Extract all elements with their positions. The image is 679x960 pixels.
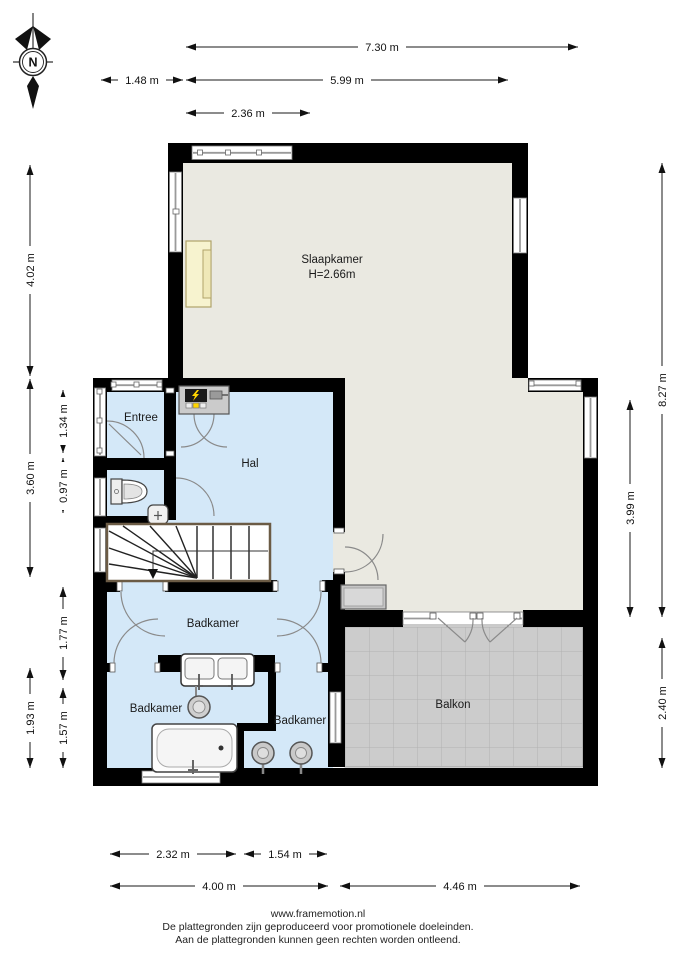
dim-right-total-height: 8.27 m bbox=[655, 163, 669, 617]
dim-bottom-bath-right-width: 1.54 m bbox=[244, 847, 327, 861]
badkamer-links-label: Badkamer bbox=[130, 703, 183, 715]
hand-basin bbox=[148, 505, 168, 524]
dim-left-lower-height: 1.93 m bbox=[23, 668, 37, 768]
floorplan-canvas: N bbox=[0, 0, 679, 960]
dim-label: 3.60 m bbox=[25, 461, 37, 495]
balcony-left-window bbox=[330, 692, 341, 743]
dim-label: 2.40 m bbox=[657, 686, 669, 720]
dim-left-toilet-height: 0.97 m bbox=[56, 458, 70, 513]
entree-label: Entree bbox=[124, 412, 158, 424]
dim-label: 1.34 m bbox=[58, 404, 70, 438]
dim-label: 4.46 m bbox=[443, 881, 477, 893]
dim-label: 5.99 m bbox=[330, 75, 364, 87]
floorplan-page: N bbox=[0, 0, 679, 960]
bathtub-bottom-window bbox=[142, 771, 220, 783]
bedroom-cabinet bbox=[341, 585, 386, 609]
bedroom-right-window bbox=[514, 198, 527, 253]
bedroom-left-window bbox=[170, 172, 182, 252]
dim-label: 7.30 m bbox=[365, 42, 399, 54]
dim-top-window-width: 2.36 m bbox=[186, 106, 310, 120]
footer-website-link[interactable]: www.framemotion.nl bbox=[270, 908, 366, 920]
compass-north-label: N bbox=[28, 56, 37, 70]
meter-cupboard bbox=[179, 386, 229, 414]
dim-left-mid-height: 3.60 m bbox=[23, 379, 37, 577]
balcony-door-window-strip bbox=[403, 612, 523, 625]
dim-label: 4.00 m bbox=[202, 881, 236, 893]
dim-label: 4.02 m bbox=[25, 253, 37, 287]
slaapkamer-label: Slaapkamer bbox=[301, 254, 363, 266]
dim-right-bedroom-height: 3.99 m bbox=[623, 400, 637, 617]
footer: www.framemotion.nl De plattegronden zijn… bbox=[162, 908, 473, 946]
dim-label: 1.48 m bbox=[125, 75, 159, 87]
badkamer-rechts-label: Badkamer bbox=[274, 715, 327, 727]
dim-label: 3.99 m bbox=[625, 491, 637, 525]
balcony-tile-grid bbox=[345, 627, 583, 767]
north-compass-icon: N bbox=[13, 13, 53, 109]
dim-bottom-wing-width: 4.00 m bbox=[110, 879, 328, 893]
bedroom-step-window bbox=[529, 380, 581, 391]
dim-left-bathroom-height: 1.77 m bbox=[56, 587, 70, 680]
dim-bottom-bath-left-width: 2.32 m bbox=[110, 847, 236, 861]
entree-left-window bbox=[95, 388, 106, 456]
dim-label: 0.97 m bbox=[58, 469, 70, 503]
toilet bbox=[111, 479, 147, 504]
slaapkamer-height-label: H=2.66m bbox=[309, 269, 356, 281]
badkamer-main-label: Badkamer bbox=[187, 618, 240, 630]
dim-label: 1.54 m bbox=[268, 849, 302, 861]
toilet-left-window bbox=[95, 478, 106, 516]
footer-disclaimer-line2: Aan de plattegronden kunnen geen rechten… bbox=[175, 934, 460, 946]
dim-label: 8.27 m bbox=[657, 373, 669, 407]
dim-left-bath-lower-height: 1.57 m bbox=[56, 688, 70, 768]
staircase bbox=[107, 524, 270, 581]
dim-label: 1.93 m bbox=[25, 701, 37, 735]
dim-right-balcony-height: 2.40 m bbox=[655, 638, 669, 768]
dim-label: 2.36 m bbox=[231, 108, 265, 120]
dim-label: 1.57 m bbox=[58, 711, 70, 745]
hal-label: Hal bbox=[241, 458, 258, 470]
double-sink-vanity bbox=[181, 654, 254, 690]
balkon-label: Balkon bbox=[435, 699, 470, 711]
bed bbox=[186, 241, 211, 307]
footer-disclaimer-line1: De plattegronden zijn geproduceerd voor … bbox=[162, 921, 473, 933]
dim-left-bedroom-height: 4.02 m bbox=[23, 165, 37, 376]
dim-left-entree-height: 1.34 m bbox=[56, 390, 70, 453]
dim-top-bedroom-width: 5.99 m bbox=[186, 73, 508, 87]
bedroom-lower-right-window bbox=[585, 397, 597, 458]
dim-label: 1.77 m bbox=[58, 616, 70, 650]
dim-label: 2.32 m bbox=[156, 849, 190, 861]
bedroom-top-window bbox=[192, 146, 292, 160]
dim-top-full-width: 7.30 m bbox=[186, 40, 578, 54]
dim-bottom-balcony-width: 4.46 m bbox=[340, 879, 580, 893]
dim-top-left-offset: 1.48 m bbox=[101, 73, 183, 87]
entree-top-window bbox=[111, 380, 162, 391]
stairs-left-window bbox=[95, 528, 106, 572]
bathtub bbox=[152, 724, 237, 774]
